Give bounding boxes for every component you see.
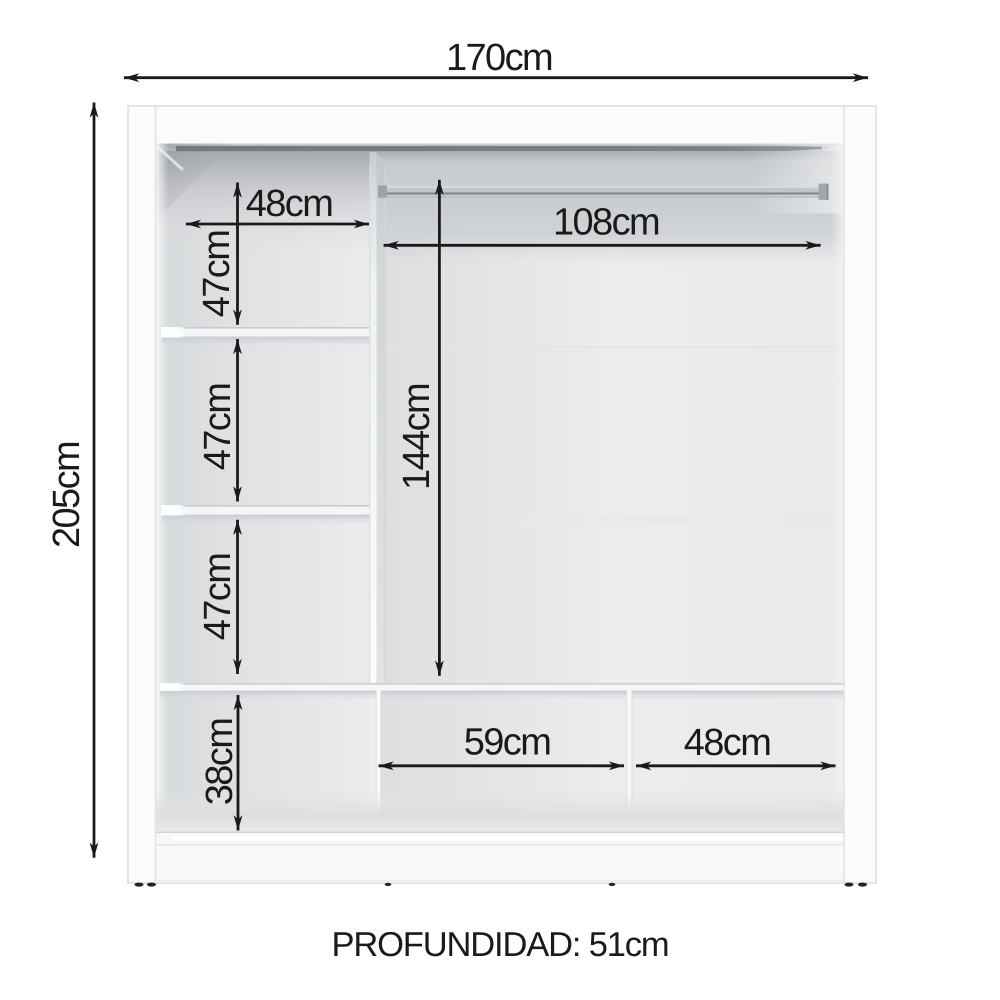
svg-text:48cm: 48cm [684,722,771,764]
svg-text:170cm: 170cm [446,37,552,79]
svg-text:47cm: 47cm [197,554,239,641]
svg-text:108cm: 108cm [553,202,659,244]
svg-text:PROFUNDIDAD: 51cm: PROFUNDIDAD: 51cm [332,926,669,964]
svg-text:47cm: 47cm [197,384,239,471]
svg-text:38cm: 38cm [199,719,241,806]
svg-text:144cm: 144cm [396,384,438,490]
svg-text:205cm: 205cm [46,442,88,548]
svg-text:59cm: 59cm [464,722,551,764]
svg-text:47cm: 47cm [196,231,238,318]
svg-text:48cm: 48cm [246,183,333,225]
